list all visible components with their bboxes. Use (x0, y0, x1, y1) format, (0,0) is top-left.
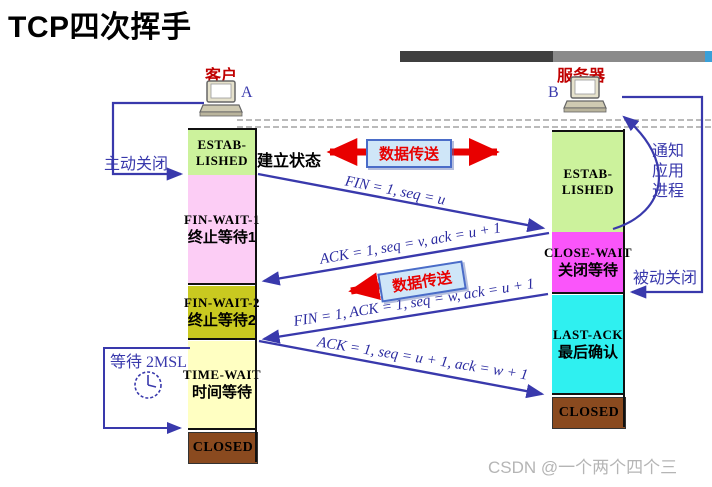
state-label: CLOSED (559, 405, 620, 421)
top-bar-blue-tip (705, 51, 712, 62)
client-state-closed: CLOSED (188, 432, 258, 464)
page-title: TCP四次挥手 (8, 2, 192, 46)
state-label: LAST-ACK (553, 327, 623, 343)
message-label-fin: FIN = 1, seq = u (300, 165, 490, 218)
state-label: FIN-WAIT-1 (184, 212, 260, 228)
client-state-established: ESTAB- LISHED (188, 128, 256, 177)
notify-line: 应用 (652, 162, 684, 182)
state-label: LISHED (196, 153, 248, 169)
server-host-letter: B (548, 84, 559, 102)
state-label-zh: 终止等待1 (188, 228, 256, 247)
state-label: LISHED (562, 182, 614, 198)
server-state-closed: CLOSED (552, 397, 626, 429)
tcp-four-way-handshake-diagram: TCP四次挥手 客户 A 服务器 B ESTAB- LISHED 建立状态 FI… (0, 0, 712, 487)
state-label-zh: 终止等待2 (188, 311, 256, 330)
state-label: TIME-WAIT (183, 367, 261, 383)
state-label: ESTAB- (198, 137, 247, 153)
wait-2msl-label: 等待 2MSL (110, 348, 187, 372)
message-label-ack2: ACK = 1, seq = u + 1, ack = w + 1 (300, 332, 545, 387)
client-host-letter: A (241, 84, 253, 102)
server-state-last-ack: LAST-ACK 最后确认 (552, 295, 624, 395)
client-computer-icon (196, 80, 246, 125)
notify-line: 进程 (652, 182, 684, 202)
state-label-zh: 最后确认 (558, 343, 618, 362)
watermark: CSDN @一个两个四个三 (488, 453, 677, 478)
state-label: ESTAB- (564, 166, 613, 182)
server-state-close-wait: CLOSE-WAIT 关闭等待 (552, 232, 624, 294)
state-label: CLOSE-WAIT (544, 245, 632, 261)
top-bar-dark-segment (400, 51, 553, 62)
state-label: FIN-WAIT-2 (184, 295, 260, 311)
state-label-zh: 关闭等待 (558, 261, 618, 280)
client-state-fin-wait-2: FIN-WAIT-2 终止等待2 (188, 286, 256, 340)
client-state-fin-wait-1: FIN-WAIT-1 终止等待1 (188, 175, 256, 285)
client-state-time-wait: TIME-WAIT 时间等待 (188, 341, 256, 430)
state-label: CLOSED (193, 440, 254, 456)
passive-close-label: 被动关闭 (633, 264, 697, 288)
clock-icon (135, 372, 161, 398)
server-computer-icon (560, 76, 610, 121)
top-bar-gray-segment (553, 51, 705, 62)
message-label-ack1: ACK = 1, seq = v, ack = u + 1 (298, 217, 523, 273)
state-label-zh: 时间等待 (192, 383, 252, 402)
data-transfer-box-top: 数据传送 (366, 139, 452, 168)
active-close-label: 主动关闭 (104, 150, 168, 174)
server-state-established: ESTAB- LISHED (552, 130, 624, 234)
notify-line: 通知 (652, 142, 684, 162)
notify-app-label: 通知 应用 进程 (652, 142, 684, 202)
